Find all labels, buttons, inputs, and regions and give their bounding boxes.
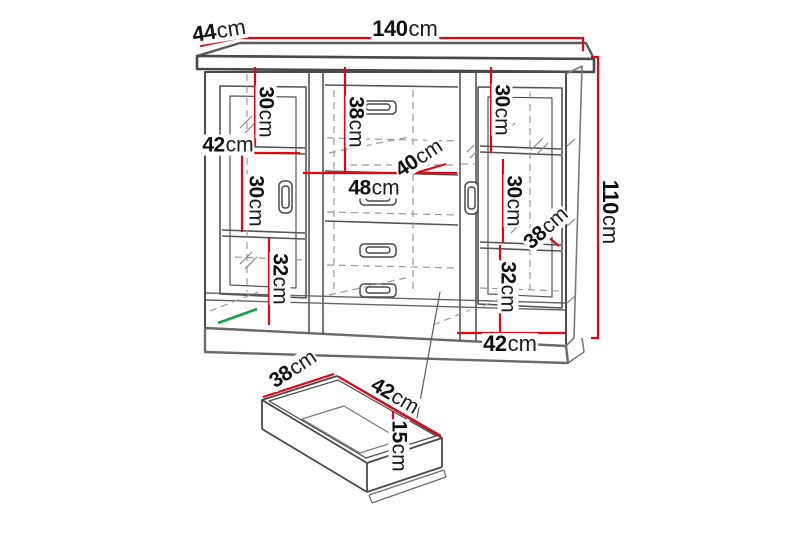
dim-value: 15 (388, 420, 411, 442)
dim-drawer-height: 15cm (389, 419, 410, 472)
dim-right-top-section: 30cm (492, 83, 513, 136)
dim-unit: cm (215, 14, 248, 43)
dim-unit: cm (255, 110, 278, 138)
dim-left-bottom-section: 32cm (270, 252, 291, 305)
dim-left-top-section: 30cm (256, 85, 277, 138)
dim-value: 44 (190, 19, 217, 47)
dim-value: 42 (483, 331, 506, 356)
dim-unit: cm (497, 285, 520, 313)
dim-right-bottom-section: 32cm (498, 260, 519, 313)
dim-unit: cm (508, 331, 537, 356)
dim-value: 110 (598, 180, 623, 214)
dim-unit: cm (345, 120, 368, 148)
dim-value: 140 (372, 16, 407, 41)
dim-mid-top-section: 38cm (346, 95, 367, 148)
dim-value: 42 (202, 134, 224, 157)
dim-unit: cm (503, 199, 526, 227)
dim-value: 48 (348, 177, 370, 200)
dim-left-mid-section: 30cm (246, 174, 267, 227)
dim-value: 30 (245, 175, 268, 197)
dim-unit: cm (408, 16, 437, 41)
dim-mid-drawer-width: 48cm (347, 178, 400, 199)
dim-left-door-width: 42cm (201, 135, 254, 156)
dim-unit: cm (388, 444, 411, 472)
dim-value: 38 (345, 96, 368, 118)
dim-line-height (591, 57, 598, 338)
dim-unit: cm (226, 134, 254, 157)
dimension-diagram: 140cm 44cm 110cm 30cm 42cm 30cm 32cm 38c… (0, 0, 800, 533)
dim-right-door-width: 42cm (482, 333, 538, 355)
dim-value: 30 (255, 86, 278, 108)
dim-unit: cm (491, 108, 514, 136)
dim-cabinet-width: 140cm (371, 18, 439, 40)
dim-unit: cm (598, 215, 623, 244)
dim-value: 32 (497, 261, 520, 283)
dim-right-mid-section: 30cm (504, 174, 525, 227)
right-door-handle (465, 182, 478, 214)
cabinet-top-fascia (197, 56, 594, 72)
dim-unit: cm (245, 199, 268, 227)
left-door-handle (279, 181, 292, 213)
dim-unit: cm (269, 277, 292, 305)
drawer-runner-rail (369, 470, 446, 503)
dim-value: 30 (503, 175, 526, 197)
dim-cabinet-height: 110cm (599, 179, 621, 245)
dim-unit: cm (372, 177, 400, 200)
dim-value: 32 (269, 253, 292, 275)
dim-value: 30 (491, 84, 514, 106)
